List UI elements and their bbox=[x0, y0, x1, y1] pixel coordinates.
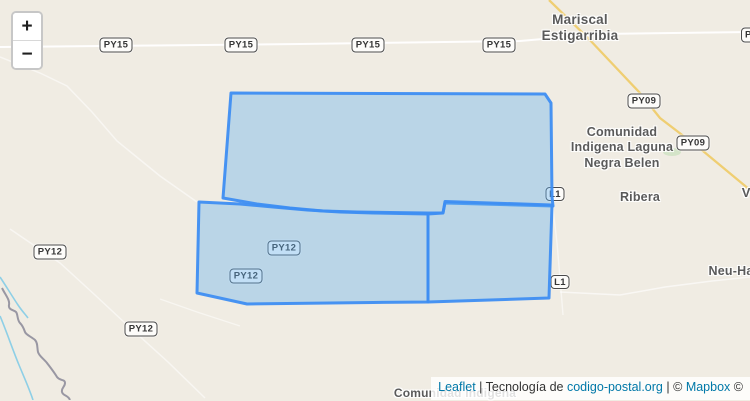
postal-area-overlay bbox=[0, 0, 750, 400]
zoom-out-button[interactable]: − bbox=[13, 41, 41, 68]
postal-area-polygon-north bbox=[223, 93, 553, 213]
road-shield-py12: PY12 bbox=[125, 322, 158, 337]
place-label-vi-partial: Vi bbox=[742, 185, 750, 201]
zoom-in-button[interactable]: + bbox=[13, 13, 41, 41]
copyright-symbol: © bbox=[673, 380, 682, 394]
road-minor-neu-halbstadt bbox=[560, 277, 750, 295]
leaflet-link[interactable]: Leaflet bbox=[438, 380, 476, 394]
road-shield-py12: PY12 bbox=[34, 245, 67, 260]
codigo-postal-link[interactable]: codigo-postal.org bbox=[567, 380, 663, 394]
place-labels-layer: MariscalEstigarribiaComunidadIndigena La… bbox=[0, 0, 750, 400]
road-shield-py15: PY15 bbox=[483, 38, 516, 53]
attribution-prefix: Tecnología de bbox=[486, 380, 564, 394]
attribution-separator: | bbox=[479, 380, 482, 394]
mapbox-link[interactable]: Mapbox bbox=[686, 380, 730, 394]
road-py09 bbox=[549, 0, 750, 190]
road-minor-southeast bbox=[160, 299, 240, 326]
postal-area-polygon-southwest bbox=[197, 202, 428, 304]
road-shield-py15: PY15 bbox=[100, 38, 133, 53]
road-shield-p: P bbox=[741, 28, 750, 43]
map-tiles bbox=[0, 0, 750, 400]
river-boundary bbox=[2, 288, 70, 400]
place-label-neu-ha-partial: Neu-Ha bbox=[709, 264, 750, 279]
place-label-comunidad-indigena-laguna-negra-belen: ComunidadIndigena LagunaNegra Belen bbox=[571, 125, 673, 171]
road-shields-layer: PY15PY15PY15PY15PPY09PY09PY12PY12PY12PY1… bbox=[0, 0, 750, 400]
attribution-bar: Leaflet | Tecnología de codigo-postal.or… bbox=[431, 377, 750, 400]
road-minor-l1 bbox=[553, 208, 563, 315]
road-minor-northwest bbox=[0, 57, 197, 202]
road-minor-py12 bbox=[10, 229, 205, 398]
park-area bbox=[663, 148, 681, 156]
postal-area-polygon-southeast bbox=[428, 202, 552, 303]
attribution-separator: | bbox=[666, 380, 669, 394]
road-py15 bbox=[0, 32, 750, 47]
road-shield-l1: L1 bbox=[546, 187, 565, 201]
road-shield-py15: PY15 bbox=[225, 38, 258, 53]
road-shield-py09: PY09 bbox=[677, 136, 710, 151]
road-shield-py15: PY15 bbox=[352, 38, 385, 53]
road-shield-l1: L1 bbox=[551, 275, 570, 289]
map-canvas[interactable]: { "theme": { "map_bg": "#f0ece3", "polyg… bbox=[0, 0, 750, 400]
place-label-ribera: Ribera bbox=[620, 190, 660, 205]
road-shield-py12: PY12 bbox=[268, 241, 301, 256]
road-shield-py09: PY09 bbox=[628, 94, 661, 109]
stream-2 bbox=[0, 316, 33, 400]
place-label-mariscal-estigarribia: MariscalEstigarribia bbox=[542, 12, 619, 45]
copyright-symbol: © bbox=[734, 380, 743, 394]
stream-1 bbox=[0, 277, 28, 318]
road-shield-py12: PY12 bbox=[230, 269, 263, 284]
zoom-control: + − bbox=[11, 11, 43, 70]
